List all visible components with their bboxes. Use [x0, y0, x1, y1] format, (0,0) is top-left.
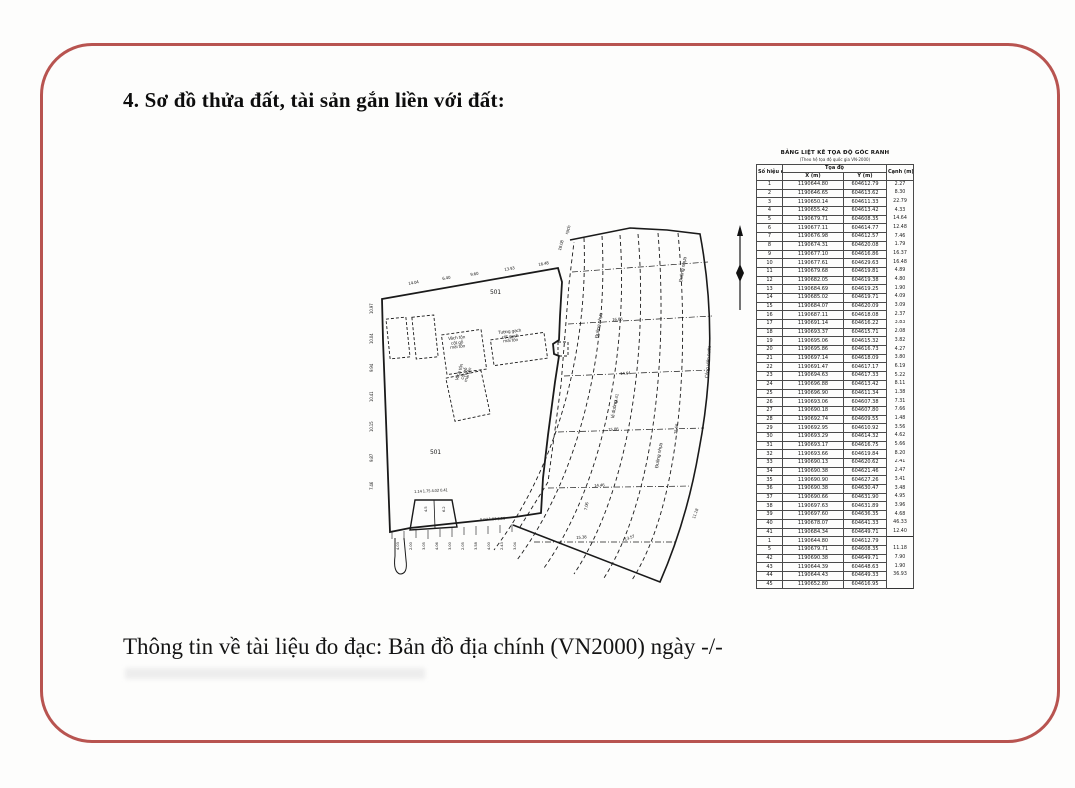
point-number: 28 [757, 415, 783, 424]
edge-length: 8.11 [887, 380, 914, 389]
map-annotation: Công viên nước [706, 346, 714, 378]
col-header-x: X (m) [783, 173, 844, 181]
y-coordinate: 604614.77 [844, 224, 887, 233]
x-coordinate: 1190644.80 [783, 181, 844, 190]
table-row: 1 1190644.80 604612.79 [757, 537, 914, 546]
edge-length: 7.46 [887, 233, 914, 242]
map-annotation: 501 [490, 290, 501, 296]
x-coordinate: 1190674.31 [783, 241, 844, 250]
table-row: 21 1190697.14 604618.09 3.80 [757, 354, 914, 363]
edge-length: 3.48 [887, 485, 914, 494]
point-number: 37 [757, 493, 783, 502]
x-coordinate: 1190697.60 [783, 511, 844, 520]
table-row: 32 1190693.66 604619.84 8.20 [757, 450, 914, 459]
y-coordinate: 604612.57 [844, 233, 887, 242]
table-row: 3 1190650.14 604611.33 22.79 [757, 198, 914, 207]
table-row: 2 1190646.65 604613.62 8.30 [757, 189, 914, 198]
edge-length: 4.68 [887, 511, 914, 520]
map-annotation: 11.18 [692, 508, 700, 519]
x-coordinate: 1190677.61 [783, 259, 844, 268]
x-coordinate: 1190690.38 [783, 485, 844, 494]
table-row: 19 1190695.06 604615.32 3.82 [757, 337, 914, 346]
parcel-map: 501501Vách tôn cột gỗ mái tônTường gạch … [362, 220, 750, 602]
map-annotation: 10.04 [370, 334, 374, 344]
map-annotation: 3.05 [422, 542, 426, 550]
coordinate-table-body: 1 1190644.80 604612.79 2.27 2 1190646.65… [757, 181, 914, 589]
table-row: 40 1190678.07 604641.33 46.33 [757, 519, 914, 528]
point-number: 41 [757, 528, 783, 537]
y-coordinate: 604619.38 [844, 276, 887, 285]
x-coordinate: 1190682.05 [783, 276, 844, 285]
x-coordinate: 1190690.90 [783, 476, 844, 485]
edge-length: 12.48 [887, 224, 914, 233]
edge-length: 7.31 [887, 398, 914, 407]
y-coordinate: 604617.33 [844, 372, 887, 381]
x-coordinate: 1190677.10 [783, 250, 844, 259]
edge-length: 3.09 [887, 302, 914, 311]
x-coordinate: 1190644.39 [783, 563, 844, 572]
table-row: 8 1190674.31 604620.08 1.79 [757, 241, 914, 250]
point-number: 5 [757, 215, 783, 224]
y-coordinate: 604616.95 [844, 580, 887, 589]
x-coordinate: 1190687.11 [783, 311, 844, 320]
edge-length: 12.40 [887, 528, 914, 537]
y-coordinate: 604610.92 [844, 424, 887, 433]
table-row: 18 1190693.37 604615.71 2.08 [757, 328, 914, 337]
point-number: 3 [757, 198, 783, 207]
map-annotation: 4.00 [487, 542, 491, 550]
y-coordinate: 604616.73 [844, 346, 887, 355]
x-coordinate: 1190652.80 [783, 580, 844, 589]
table-row: 5 1190679.71 604608.35 14.64 [757, 215, 914, 224]
point-number: 43 [757, 563, 783, 572]
edge-length: 5.22 [887, 372, 914, 381]
edge-length: 4.09 [887, 293, 914, 302]
edge-length: 2.47 [887, 467, 914, 476]
x-coordinate: 1190690.13 [783, 459, 844, 468]
y-coordinate: 604620.62 [844, 459, 887, 468]
map-annotation: Vách tôn cột gỗ mái tôn [456, 364, 474, 384]
table-row: 42 1190690.38 604649.71 7.90 [757, 554, 914, 563]
edge-length: 2.37 [887, 311, 914, 320]
point-number: 10 [757, 259, 783, 268]
edge-length: 4.33 [887, 207, 914, 216]
map-annotation: 1.14 1.75 4.02 0.41 [414, 488, 448, 494]
map-annotation: 14.04 [408, 280, 419, 286]
y-coordinate: 604629.63 [844, 259, 887, 268]
map-annotation: 4.06 [435, 542, 439, 550]
map-annotation: rạch [566, 225, 573, 235]
y-coordinate: 604618.08 [844, 311, 887, 320]
y-coordinate: 604612.79 [844, 181, 887, 190]
x-coordinate: 1190693.06 [783, 398, 844, 407]
table-row: 36 1190690.38 604630.47 3.48 [757, 485, 914, 494]
map-annotation: 10.97 [370, 304, 374, 314]
point-number: 34 [757, 467, 783, 476]
point-number: 39 [757, 511, 783, 520]
map-annotation: 2.43 [500, 542, 504, 550]
x-coordinate: 1190697.63 [783, 502, 844, 511]
point-number: 16 [757, 311, 783, 320]
table-row: 5 1190679.71 604608.35 11.18 [757, 545, 914, 554]
table-row: 10 1190677.61 604629.63 16.48 [757, 259, 914, 268]
edge-length: 1.48 [887, 415, 914, 424]
edge-length: 8.30 [887, 189, 914, 198]
point-number: 26 [757, 398, 783, 407]
edge-length: 7.66 [887, 406, 914, 415]
point-number: 17 [757, 320, 783, 329]
point-number: 1 [757, 181, 783, 190]
y-coordinate: 604627.26 [844, 476, 887, 485]
x-coordinate: 1190693.17 [783, 441, 844, 450]
edge-length: 1.38 [887, 389, 914, 398]
edge-length: 4.27 [887, 346, 914, 355]
point-number: 45 [757, 580, 783, 589]
x-coordinate: 1190696.90 [783, 389, 844, 398]
table-row: 30 1190693.29 604614.32 4.62 [757, 432, 914, 441]
faded-text-remnant [125, 668, 425, 679]
point-number: 7 [757, 233, 783, 242]
point-number: 8 [757, 241, 783, 250]
map-annotation: 3.04 [513, 542, 517, 550]
col-header-point: Số hiệu điểm [757, 165, 783, 181]
map-annotation: 14.46 [594, 483, 605, 488]
x-coordinate: 1190693.37 [783, 328, 844, 337]
point-number: 4 [757, 207, 783, 216]
x-coordinate: 1190690.18 [783, 406, 844, 415]
table-row: 37 1190690.66 604631.90 4.95 [757, 493, 914, 502]
section-title: 4. Sơ đồ thửa đất, tài sản gắn liền với … [123, 88, 505, 113]
table-row: 27 1190690.18 604607.80 7.66 [757, 406, 914, 415]
y-coordinate: 604641.33 [844, 519, 887, 528]
map-annotation: 15.86 [608, 427, 619, 432]
table-row: 34 1190690.38 604621.46 2.47 [757, 467, 914, 476]
table-row: 28 1190692.74 604609.55 1.48 [757, 415, 914, 424]
y-coordinate: 604620.09 [844, 302, 887, 311]
table-row: 23 1190694.63 604617.33 5.22 [757, 372, 914, 381]
x-coordinate: 1190690.38 [783, 467, 844, 476]
survey-info-text: Thông tin về tài liệu đo đạc: Bản đồ địa… [123, 634, 723, 660]
y-coordinate: 604615.32 [844, 337, 887, 346]
edge-length: 46.33 [887, 519, 914, 528]
point-number: 42 [757, 554, 783, 563]
table-row: 45 1190652.80 604616.95 [757, 580, 914, 589]
point-number: 29 [757, 424, 783, 433]
table-row: 11 1190679.68 604619.81 4.89 [757, 267, 914, 276]
edge-length: 36.93 [887, 571, 914, 580]
edge-length: 3.82 [887, 337, 914, 346]
y-coordinate: 604630.47 [844, 485, 887, 494]
x-coordinate: 1190690.66 [783, 493, 844, 502]
map-annotation: 4.5 [424, 507, 428, 512]
point-number: 18 [757, 328, 783, 337]
map-annotation: 6.40 [442, 276, 451, 282]
table-row: 7 1190676.98 604612.57 7.46 [757, 233, 914, 242]
map-annotation: Vách tôn cột gỗ mái tôn [448, 336, 466, 351]
edge-length: 3.56 [887, 424, 914, 433]
y-coordinate: 604619.84 [844, 450, 887, 459]
edge-length: 3.80 [887, 354, 914, 363]
y-coordinate: 604607.38 [844, 398, 887, 407]
table-row: 31 1190693.17 604616.75 5.66 [757, 441, 914, 450]
table-row: 35 1190690.90 604627.26 3.41 [757, 476, 914, 485]
col-header-edge: Cạnh (m) [887, 165, 914, 181]
y-coordinate: 604611.33 [844, 198, 887, 207]
point-number: 27 [757, 406, 783, 415]
coordinate-table-subtitle: (Theo hệ tọa độ quốc gia VN-2000) [756, 157, 914, 162]
map-annotation: Tường gạch cột gạch mái tôn [498, 330, 523, 346]
map-annotation: 18.08 [558, 240, 565, 251]
map-annotation: 9.87 [370, 454, 374, 462]
edge-length: 16.37 [887, 250, 914, 259]
table-row: 43 1190644.39 604648.63 1.90 [757, 563, 914, 572]
x-coordinate: 1190693.66 [783, 450, 844, 459]
point-number: 33 [757, 459, 783, 468]
map-annotation: 9.94 [370, 364, 374, 372]
point-number: 44 [757, 571, 783, 580]
map-annotation: 5.07 1.97 5.96 [480, 517, 505, 522]
x-coordinate: 1190693.29 [783, 432, 844, 441]
point-number: 9 [757, 250, 783, 259]
point-number: 24 [757, 380, 783, 389]
table-row: 13 1190684.69 604619.25 1.90 [757, 285, 914, 294]
map-annotation: 14.64 [620, 371, 631, 376]
point-number: 30 [757, 432, 783, 441]
point-number: 14 [757, 293, 783, 302]
x-coordinate: 1190685.02 [783, 293, 844, 302]
y-coordinate: 604619.25 [844, 285, 887, 294]
x-coordinate: 1190692.95 [783, 424, 844, 433]
table-row: 41 1190684.34 604649.71 12.40 [757, 528, 914, 537]
table-row: 14 1190685.02 604619.71 4.09 [757, 293, 914, 302]
point-number: 13 [757, 285, 783, 294]
table-row: 20 1190695.86 604616.73 4.27 [757, 346, 914, 355]
map-annotation: 501 [430, 450, 441, 456]
table-row: 39 1190697.60 604636.35 4.68 [757, 511, 914, 520]
y-coordinate: 604613.62 [844, 189, 887, 198]
x-coordinate: 1190684.34 [783, 528, 844, 537]
map-annotation: 4.03 [396, 542, 400, 550]
y-coordinate: 604616.86 [844, 250, 887, 259]
x-coordinate: 1190696.88 [783, 380, 844, 389]
point-number: 40 [757, 519, 783, 528]
y-coordinate: 604636.35 [844, 511, 887, 520]
map-annotation: 3.00 [448, 542, 452, 550]
y-coordinate: 604649.33 [844, 571, 887, 580]
map-annotation: 10.15 [370, 422, 374, 432]
y-coordinate: 604631.89 [844, 502, 887, 511]
edge-length: 11.18 [887, 545, 914, 554]
table-row: 1 1190644.80 604612.79 2.27 [757, 181, 914, 190]
table-row: 6 1190677.11 604614.77 12.48 [757, 224, 914, 233]
y-coordinate: 604620.08 [844, 241, 887, 250]
table-row: 25 1190696.90 604611.34 1.38 [757, 389, 914, 398]
point-number: 32 [757, 450, 783, 459]
edge-length: 16.48 [887, 259, 914, 268]
table-row: 38 1190697.63 604631.89 3.96 [757, 502, 914, 511]
edge-length: 2.27 [887, 181, 914, 190]
map-annotation: Đường nhựa [656, 443, 665, 469]
y-coordinate: 604631.90 [844, 493, 887, 502]
x-coordinate: 1190678.07 [783, 519, 844, 528]
point-number: 15 [757, 302, 783, 311]
y-coordinate: 604608.35 [844, 545, 887, 554]
point-number: 12 [757, 276, 783, 285]
x-coordinate: 1190690.38 [783, 554, 844, 563]
x-coordinate: 1190679.68 [783, 267, 844, 276]
point-number: 35 [757, 476, 783, 485]
edge-length: 14.64 [887, 215, 914, 224]
map-annotation: 15.38 [576, 535, 587, 540]
edge-length: 4.95 [887, 493, 914, 502]
x-coordinate: 1190684.07 [783, 302, 844, 311]
table-row: 15 1190684.07 604620.09 3.09 [757, 302, 914, 311]
point-number: 20 [757, 346, 783, 355]
y-coordinate: 604649.71 [844, 554, 887, 563]
edge-length: 7.90 [887, 554, 914, 563]
point-number: 2 [757, 189, 783, 198]
edge-length: 3.41 [887, 476, 914, 485]
y-coordinate: 604611.34 [844, 389, 887, 398]
edge-length [887, 580, 914, 589]
y-coordinate: 604617.17 [844, 363, 887, 372]
y-coordinate: 604618.09 [844, 354, 887, 363]
x-coordinate: 1190695.06 [783, 337, 844, 346]
edge-length: 8.20 [887, 450, 914, 459]
table-row: 12 1190682.05 604619.38 4.80 [757, 276, 914, 285]
edge-length: 3.96 [887, 502, 914, 511]
map-annotation: 6.2 [442, 507, 446, 512]
x-coordinate: 1190697.14 [783, 354, 844, 363]
point-number: 21 [757, 354, 783, 363]
map-annotation: 7.06 [584, 502, 590, 511]
x-coordinate: 1190679.71 [783, 545, 844, 554]
map-annotation: 9.60 [470, 272, 479, 278]
map-annotation: 10.41 [370, 392, 374, 402]
map-annotations: 501501Vách tôn cột gỗ mái tônTường gạch … [362, 220, 750, 602]
x-coordinate: 1190646.65 [783, 189, 844, 198]
edge-length: 4.80 [887, 276, 914, 285]
table-row: 4 1190655.42 604613.42 4.33 [757, 207, 914, 216]
table-row: 26 1190693.06 604607.38 7.31 [757, 398, 914, 407]
point-number: 5 [757, 545, 783, 554]
map-annotation: Đường nhựa [680, 257, 689, 283]
y-coordinate: 604616.22 [844, 320, 887, 329]
edge-length: 4.62 [887, 432, 914, 441]
edge-length: 3.83 [887, 320, 914, 329]
edge-length: 5.66 [887, 441, 914, 450]
table-row: 29 1190692.95 604610.92 3.56 [757, 424, 914, 433]
coordinate-table-title: BẢNG LIỆT KÊ TỌA ĐỘ GÓC RANH [756, 150, 914, 156]
y-coordinate: 604615.71 [844, 328, 887, 337]
table-row: 9 1190677.10 604616.86 16.37 [757, 250, 914, 259]
point-number: 6 [757, 224, 783, 233]
coordinate-table: Số hiệu điểm Tọa độ Cạnh (m) X (m) Y (m)… [756, 164, 914, 589]
edge-length: 1.90 [887, 563, 914, 572]
map-annotation: Đường nhựa [596, 313, 605, 339]
x-coordinate: 1190691.14 [783, 320, 844, 329]
point-number: 31 [757, 441, 783, 450]
point-number: 1 [757, 537, 783, 546]
x-coordinate: 1190684.69 [783, 285, 844, 294]
edge-length: 1.90 [887, 285, 914, 294]
y-coordinate: 604619.71 [844, 293, 887, 302]
edge-length: 1.79 [887, 241, 914, 250]
y-coordinate: 604616.75 [844, 441, 887, 450]
point-number: 25 [757, 389, 783, 398]
coordinate-table-header: Số hiệu điểm Tọa độ Cạnh (m) X (m) Y (m) [757, 165, 914, 181]
y-coordinate: 604613.42 [844, 207, 887, 216]
x-coordinate: 1190644.43 [783, 571, 844, 580]
edge-length: 22.79 [887, 198, 914, 207]
point-number: 23 [757, 372, 783, 381]
y-coordinate: 604649.71 [844, 528, 887, 537]
point-number: 22 [757, 363, 783, 372]
y-coordinate: 604613.42 [844, 380, 887, 389]
y-coordinate: 604607.80 [844, 406, 887, 415]
edge-length [887, 537, 914, 546]
table-row: 22 1190691.47 604617.17 6.19 [757, 363, 914, 372]
coordinate-table-panel: BẢNG LIỆT KÊ TỌA ĐỘ GÓC RANH (Theo hệ tọ… [756, 150, 914, 589]
edge-length: 2.41 [887, 459, 914, 468]
map-annotation: 16.48 [538, 261, 549, 267]
map-annotation: 13.93 [504, 266, 515, 272]
map-annotation: 2.00 [409, 542, 413, 550]
map-annotation: 2.05 [461, 542, 465, 550]
x-coordinate: 1190692.74 [783, 415, 844, 424]
y-coordinate: 604614.32 [844, 432, 887, 441]
col-header-coords: Tọa độ [783, 165, 887, 173]
edge-length: 6.19 [887, 363, 914, 372]
map-annotation: 3.58 [474, 542, 478, 550]
map-annotation: 13.57 [624, 534, 635, 542]
table-row: 33 1190690.13 604620.62 2.41 [757, 459, 914, 468]
x-coordinate: 1190695.86 [783, 346, 844, 355]
y-coordinate: 604619.81 [844, 267, 887, 276]
y-coordinate: 604608.35 [844, 215, 887, 224]
table-row: 17 1190691.14 604616.22 3.83 [757, 320, 914, 329]
y-coordinate: 604612.79 [844, 537, 887, 546]
map-annotation: 16.86 [612, 317, 623, 322]
x-coordinate: 1190644.80 [783, 537, 844, 546]
x-coordinate: 1190650.14 [783, 198, 844, 207]
table-row: 44 1190644.43 604649.33 36.93 [757, 571, 914, 580]
document-page: 4. Sơ đồ thửa đất, tài sản gắn liền với … [0, 0, 1075, 788]
table-row: 16 1190687.11 604618.08 2.37 [757, 311, 914, 320]
x-coordinate: 1190676.98 [783, 233, 844, 242]
x-coordinate: 1190679.71 [783, 215, 844, 224]
col-header-y: Y (m) [844, 173, 887, 181]
x-coordinate: 1190691.47 [783, 363, 844, 372]
x-coordinate: 1190677.11 [783, 224, 844, 233]
y-coordinate: 604621.46 [844, 467, 887, 476]
point-number: 11 [757, 267, 783, 276]
x-coordinate: 1190694.63 [783, 372, 844, 381]
x-coordinate: 1190655.42 [783, 207, 844, 216]
map-annotation: 7.46 [370, 482, 374, 490]
edge-length: 2.08 [887, 328, 914, 337]
point-number: 36 [757, 485, 783, 494]
point-number: 38 [757, 502, 783, 511]
edge-length: 4.89 [887, 267, 914, 276]
y-coordinate: 604609.55 [844, 415, 887, 424]
table-row: 24 1190696.88 604613.42 8.11 [757, 380, 914, 389]
map-annotation: 75.66 [674, 424, 679, 435]
y-coordinate: 604648.63 [844, 563, 887, 572]
point-number: 19 [757, 337, 783, 346]
